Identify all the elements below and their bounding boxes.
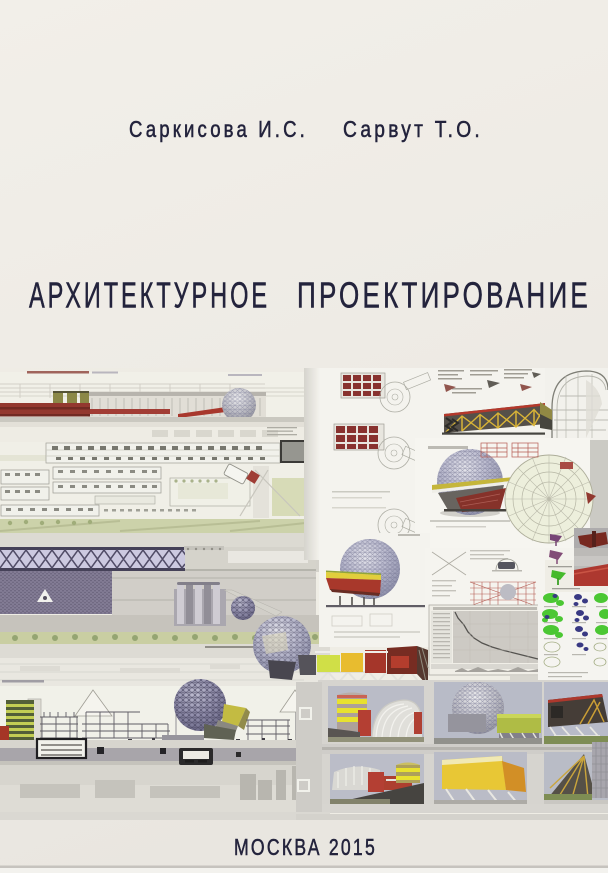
svg-text:Саркисова И.С.: Саркисова И.С. <box>129 116 308 142</box>
svg-text:Сарвут Т.О.: Сарвут Т.О. <box>343 116 483 142</box>
svg-text:ПРОЕКТИРОВАНИЕ: ПРОЕКТИРОВАНИЕ <box>297 275 591 316</box>
svg-text:АРХИТЕКТУРНОЕ: АРХИТЕКТУРНОЕ <box>29 275 270 316</box>
svg-text:МОСКВА 2015: МОСКВА 2015 <box>234 834 377 860</box>
